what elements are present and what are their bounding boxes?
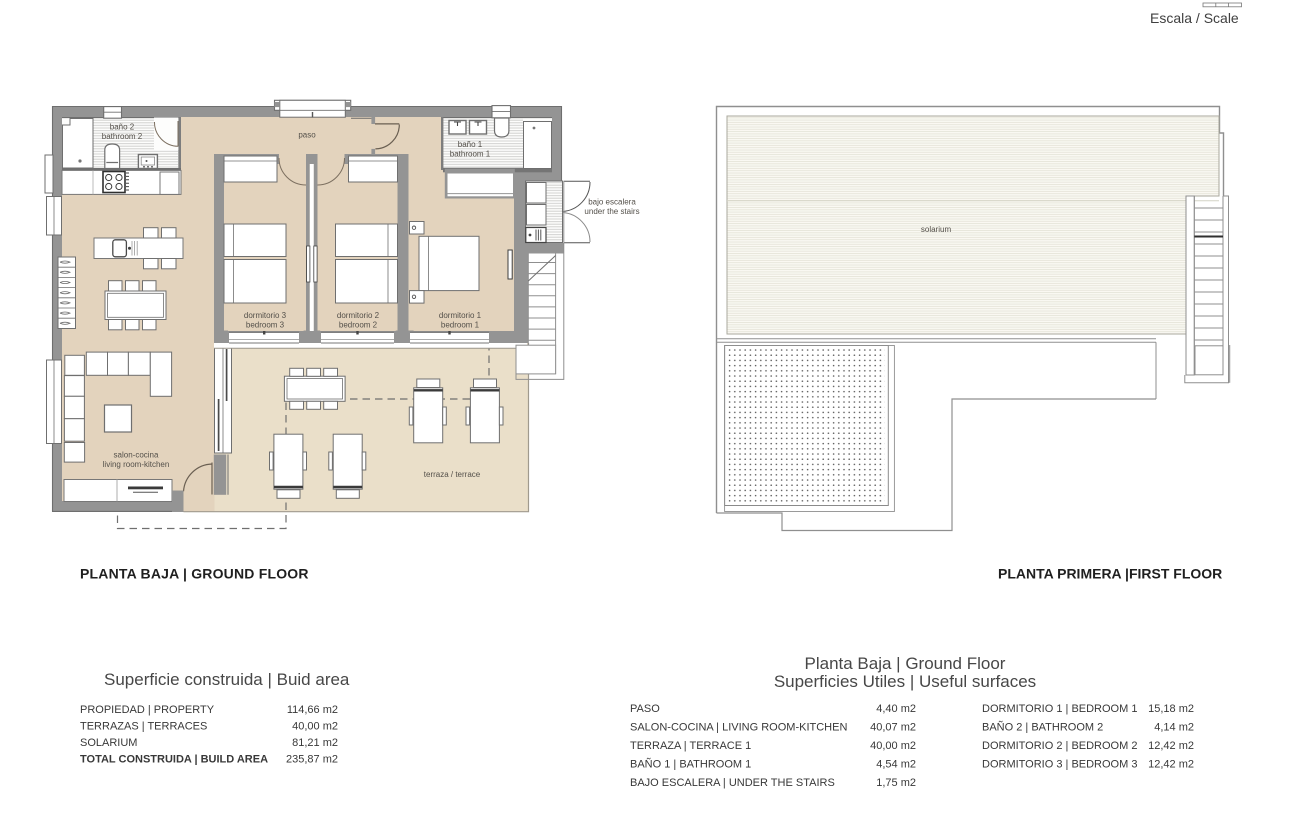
- svg-text:235,87 m2: 235,87 m2: [286, 754, 338, 766]
- svg-text:4,54 m2: 4,54 m2: [876, 759, 916, 771]
- svg-text:living room-kitchen: living room-kitchen: [103, 460, 170, 469]
- svg-text:4,40 m2: 4,40 m2: [876, 703, 916, 715]
- svg-text:4,14 m2: 4,14 m2: [1154, 722, 1194, 734]
- svg-text:TOTAL CONSTRUIDA | BUILD AREA: TOTAL CONSTRUIDA | BUILD AREA: [80, 754, 268, 766]
- svg-text:1,75 m2: 1,75 m2: [876, 777, 916, 789]
- svg-text:12,42 m2: 12,42 m2: [1148, 740, 1194, 752]
- svg-text:terraza / terrace: terraza / terrace: [424, 470, 481, 479]
- svg-text:SOLARIUM: SOLARIUM: [80, 737, 137, 749]
- svg-text:PROPIEDAD | PROPERTY: PROPIEDAD | PROPERTY: [80, 704, 215, 716]
- svg-text:under the stairs: under the stairs: [584, 207, 639, 216]
- svg-text:PLANTA BAJA | GROUND FLOOR: PLANTA BAJA | GROUND FLOOR: [80, 566, 309, 582]
- svg-text:40,00 m2: 40,00 m2: [292, 721, 338, 733]
- svg-text:dormitorio 1: dormitorio 1: [439, 311, 482, 320]
- svg-text:114,66 m2: 114,66 m2: [287, 704, 338, 716]
- svg-text:solarium: solarium: [921, 225, 952, 234]
- svg-text:bedroom 3: bedroom 3: [246, 321, 285, 330]
- svg-text:bajo escalera: bajo escalera: [588, 198, 636, 207]
- svg-text:TERRAZAS | TERRACES: TERRAZAS | TERRACES: [80, 721, 207, 733]
- svg-text:dormitorio 2: dormitorio 2: [337, 311, 380, 320]
- svg-text:12,42 m2: 12,42 m2: [1148, 759, 1194, 771]
- svg-text:SALON-COCINA | LIVING ROOM-KIT: SALON-COCINA | LIVING ROOM-KITCHEN: [630, 722, 847, 734]
- svg-text:15,18 m2: 15,18 m2: [1148, 703, 1194, 715]
- svg-text:PLANTA PRIMERA |FIRST FLOOR: PLANTA PRIMERA |FIRST FLOOR: [998, 566, 1222, 582]
- svg-text:dormitorio 3: dormitorio 3: [244, 311, 287, 320]
- svg-text:Escala / Scale: Escala / Scale: [1150, 10, 1239, 26]
- svg-text:BAÑO 1 | BATHROOM 1: BAÑO 1 | BATHROOM 1: [630, 758, 751, 771]
- svg-text:bathroom 1: bathroom 1: [450, 150, 491, 159]
- svg-text:40,00 m2: 40,00 m2: [870, 740, 916, 752]
- svg-text:40,07 m2: 40,07 m2: [870, 722, 916, 734]
- svg-text:BAJO ESCALERA | UNDER THE STAI: BAJO ESCALERA | UNDER THE STAIRS: [630, 777, 835, 789]
- svg-text:paso: paso: [298, 131, 316, 140]
- svg-text:81,21 m2: 81,21 m2: [292, 737, 338, 749]
- svg-text:TERRAZA | TERRACE 1: TERRAZA | TERRACE 1: [630, 740, 751, 752]
- svg-text:baño 2: baño 2: [110, 123, 135, 132]
- svg-text:bedroom 1: bedroom 1: [441, 321, 480, 330]
- svg-text:salon-cocina: salon-cocina: [114, 451, 159, 460]
- svg-text:DORMITORIO 1 | BEDROOM 1: DORMITORIO 1 | BEDROOM 1: [982, 703, 1137, 715]
- svg-text:BAÑO 2 | BATHROOM 2: BAÑO 2 | BATHROOM 2: [982, 721, 1103, 734]
- svg-text:bedroom 2: bedroom 2: [339, 321, 378, 330]
- svg-text:PASO: PASO: [630, 703, 660, 715]
- svg-text:DORMITORIO 3 | BEDROOM 3: DORMITORIO 3 | BEDROOM 3: [982, 759, 1137, 771]
- svg-text:bathroom 2: bathroom 2: [102, 132, 143, 141]
- svg-text:Planta Baja | Ground Floor: Planta Baja | Ground Floor: [805, 654, 1006, 673]
- svg-text:DORMITORIO 2 | BEDROOM 2: DORMITORIO 2 | BEDROOM 2: [982, 740, 1137, 752]
- svg-text:Superficies Utiles | Useful su: Superficies Utiles | Useful surfaces: [774, 672, 1036, 691]
- svg-text:baño 1: baño 1: [458, 140, 483, 149]
- svg-text:Superficie construida | Buid a: Superficie construida | Buid area: [104, 670, 350, 689]
